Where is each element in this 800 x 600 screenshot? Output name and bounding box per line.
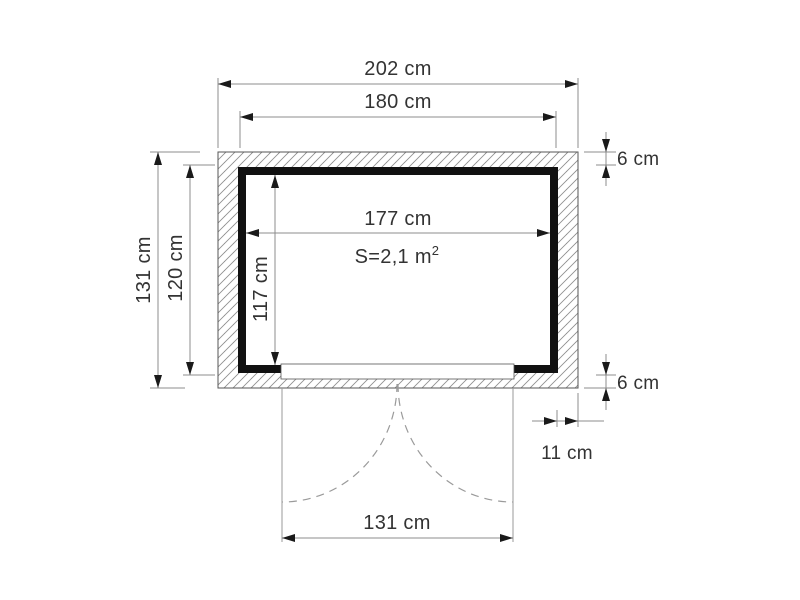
arrow-left-icon — [240, 113, 253, 121]
area-text: S=2,1 m — [355, 246, 432, 268]
dim-wall-thickness-top-label: 6 cm — [617, 149, 659, 170]
arrow-left-icon — [218, 80, 231, 88]
arrow-down-icon — [154, 375, 162, 388]
dim-overall-width-label: 202 cm — [364, 58, 431, 80]
door-swing-arc-left — [282, 384, 397, 502]
dim-wall-thickness-top: 6 cm — [584, 132, 659, 186]
arrow-right-icon — [565, 80, 578, 88]
dim-overall-depth-label: 131 cm — [133, 236, 155, 303]
arrow-right-icon — [544, 417, 557, 425]
dim-frame-depth: 120 cm — [165, 165, 215, 375]
dim-door-offset: 11 cm — [532, 393, 604, 464]
arrow-down-icon — [271, 352, 279, 365]
floor-plan-page: 202 cm 180 cm 177 cm S=2,1 m2 117 c — [0, 0, 800, 600]
dim-interior-depth-label: 117 cm — [250, 256, 272, 322]
dim-frame-width-label: 180 cm — [364, 91, 431, 113]
arrow-down-icon — [602, 139, 610, 152]
dim-wall-thickness-bottom: 6 cm — [584, 354, 659, 410]
dim-frame-depth-label: 120 cm — [165, 234, 187, 301]
arrow-right-icon — [543, 113, 556, 121]
arrow-right-icon — [565, 417, 578, 425]
door-opening-sill — [281, 364, 514, 379]
arrow-left-icon — [282, 534, 295, 542]
dim-interior-width-label: 177 cm — [364, 208, 431, 230]
arrow-up-icon — [602, 388, 610, 401]
dim-wall-thickness-bottom-label: 6 cm — [617, 373, 659, 394]
arrow-left-icon — [246, 229, 259, 237]
dim-interior-depth: 117 cm — [250, 175, 279, 365]
arrow-up-icon — [154, 152, 162, 165]
arrow-up-icon — [602, 165, 610, 178]
area-superscript: 2 — [432, 243, 440, 258]
arrow-right-icon — [537, 229, 550, 237]
arrow-down-icon — [186, 362, 194, 375]
dim-door-width: 131 cm — [282, 512, 513, 542]
arrow-right-icon — [500, 534, 513, 542]
arrow-down-icon — [602, 362, 610, 375]
dim-door-offset-label: 11 cm — [541, 443, 593, 464]
arrow-up-icon — [271, 175, 279, 188]
arrow-up-icon — [186, 165, 194, 178]
dim-door-width-label: 131 cm — [363, 512, 430, 534]
dim-frame-width: 180 cm — [240, 91, 556, 148]
door-swing-arc-right — [398, 384, 513, 502]
area-label: S=2,1 m2 — [355, 243, 440, 268]
area-value: S=2,1 m2 — [355, 243, 440, 268]
wall-inner-ring — [238, 167, 558, 373]
dim-interior-width: 177 cm — [246, 208, 550, 237]
floor-plan-diagram: 202 cm 180 cm 177 cm S=2,1 m2 117 c — [0, 0, 800, 600]
